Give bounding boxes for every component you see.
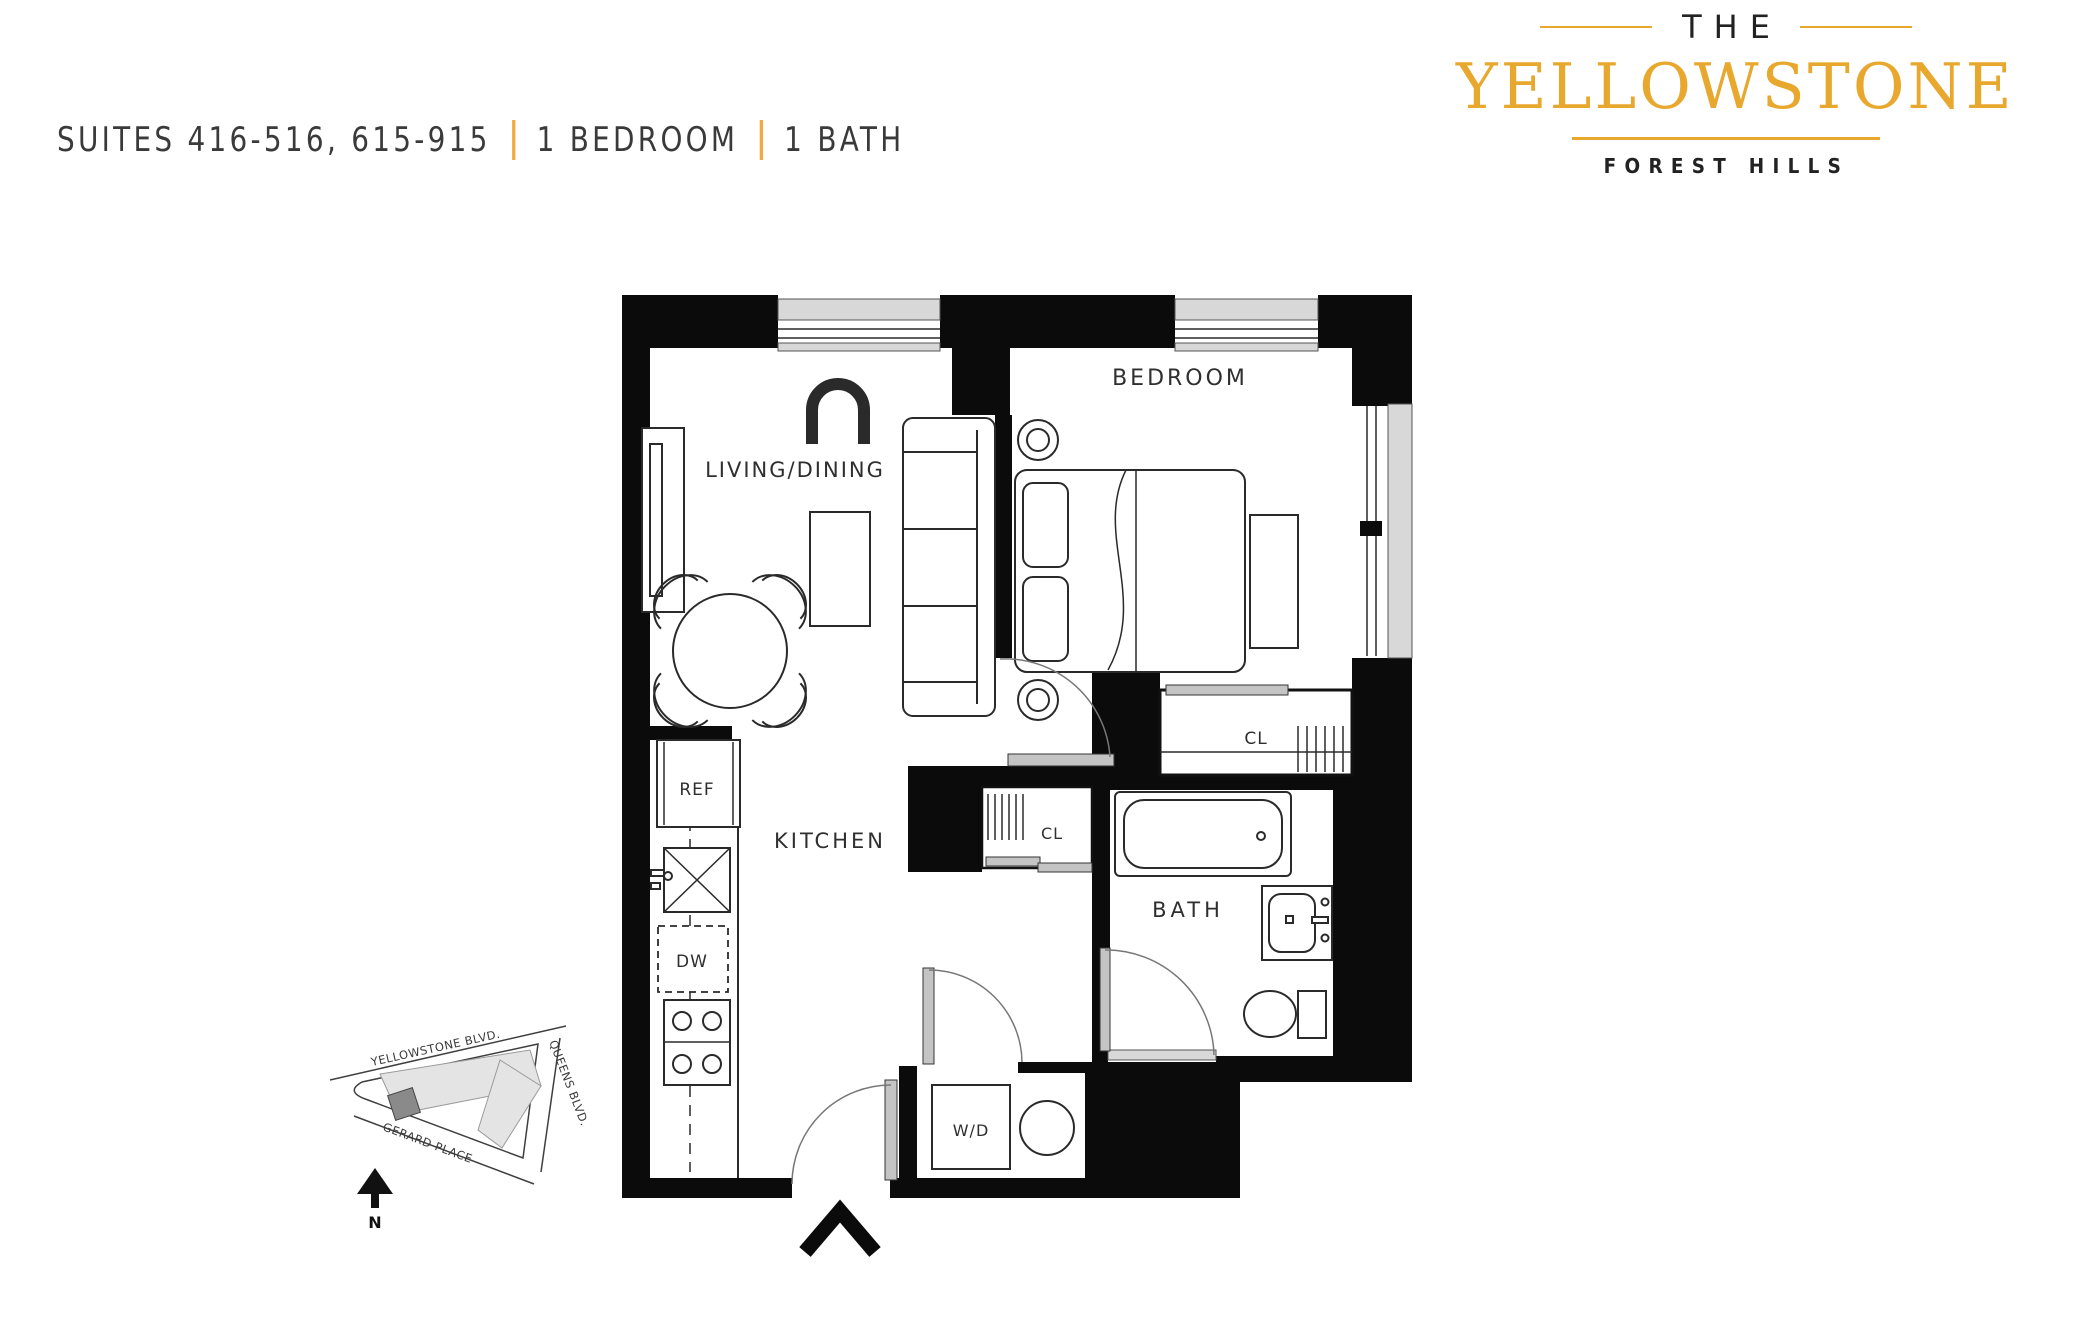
- closet-label: CL: [1244, 729, 1267, 749]
- door-leaf: [923, 968, 934, 1064]
- nightstand: [1018, 420, 1058, 460]
- nightstand-bottom: [1018, 680, 1058, 720]
- wall-shaft: [1085, 1062, 1240, 1198]
- window-sash-break: [1360, 521, 1382, 536]
- faucet: [651, 870, 664, 876]
- bath-label: BATH: [1152, 898, 1224, 922]
- washer-dryer-label: W/D: [953, 1121, 990, 1140]
- living-window: [778, 299, 940, 351]
- wall-top-right: [1318, 295, 1412, 348]
- refrigerator: REF: [657, 740, 740, 827]
- refrigerator-label: REF: [679, 780, 714, 800]
- floorplan-canvas: LIVING/DINING BEDROOM: [0, 0, 2085, 1342]
- hall-closet: CL: [982, 787, 1092, 872]
- bedroom-closet: CL: [1160, 685, 1352, 775]
- faucet-spout: [1312, 917, 1328, 923]
- living-dining-label: LIVING/DINING: [705, 458, 885, 482]
- laundry-basin: [1020, 1101, 1074, 1155]
- toilet-bowl: [1244, 991, 1296, 1037]
- wall-top-living: [650, 295, 778, 348]
- pillow: [1023, 483, 1068, 567]
- door-swing-arc: [792, 1085, 891, 1184]
- door-swing-arc: [1105, 950, 1214, 1055]
- window-sill-inner: [778, 343, 940, 351]
- bath-door: [1100, 948, 1216, 1060]
- stove: [664, 1000, 730, 1085]
- dishwasher-label: DW: [676, 952, 708, 972]
- coffee-table: [810, 512, 870, 626]
- sofa-outline: [903, 418, 995, 716]
- north-arrow-shaft: [371, 1188, 379, 1208]
- kitchen-sink: [651, 848, 730, 912]
- wall-hall-block: [908, 766, 982, 872]
- dishwasher: DW: [658, 926, 728, 992]
- kitchen-label: KITCHEN: [774, 829, 886, 853]
- wall-pier: [952, 295, 1010, 415]
- bedroom-label: BEDROOM: [1112, 366, 1248, 391]
- door-leaf: [1008, 754, 1114, 766]
- window-sill-outer: [1175, 299, 1318, 320]
- wall-entry-right: [899, 1066, 917, 1183]
- bathtub: [1115, 792, 1291, 876]
- door-leaf: [885, 1080, 897, 1180]
- wall-corner-tr: [1352, 348, 1412, 406]
- closet-door: [1038, 863, 1092, 872]
- vanity-sink: [1262, 886, 1332, 960]
- closet-door: [986, 857, 1040, 866]
- media-unit-shelf: [650, 444, 662, 596]
- window-sill-outer: [1388, 404, 1412, 658]
- wall-bottom-right: [890, 1178, 1240, 1198]
- wall-top-mid: [940, 295, 954, 348]
- entry-door: [792, 1080, 897, 1184]
- floorplan-sheet: SUITES 416-516, 615-915 1 BEDROOM 1 BATH…: [0, 0, 2085, 1342]
- bed: [1015, 470, 1245, 672]
- living-dining-room: LIVING/DINING: [640, 384, 995, 741]
- toilet-tank: [1298, 991, 1326, 1038]
- wd-door: [923, 968, 1022, 1064]
- wall-top-bedroom: [1010, 295, 1175, 348]
- site-map: YELLOWSTONE BLVD. QUEENS BLVD. GERARD PL…: [330, 1026, 592, 1232]
- closet-door: [1166, 685, 1288, 695]
- door-threshold: [1108, 1050, 1216, 1060]
- bedroom-window: [1175, 299, 1318, 351]
- sofa: [903, 418, 995, 716]
- window-sill-outer: [778, 299, 940, 320]
- wall-closet-column: [1092, 666, 1160, 790]
- wall-wd-top: [1018, 1062, 1085, 1073]
- entry-arrow-icon: [805, 1211, 875, 1252]
- nightstand: [1018, 680, 1058, 720]
- dresser: [1250, 515, 1298, 648]
- dining-table: [673, 594, 787, 708]
- wall-bottom-left: [622, 1178, 792, 1198]
- toilet: [1244, 991, 1326, 1038]
- north-label: N: [368, 1213, 381, 1232]
- bath-room: BATH: [1100, 792, 1332, 1060]
- door-leaf: [1100, 948, 1110, 1051]
- wall-kitchen-stub: [650, 726, 732, 740]
- kitchen-room: REF DW KITCHEN: [651, 740, 886, 1178]
- north-arrow-icon: N: [357, 1168, 393, 1232]
- laundry-entry: W/D: [792, 968, 1074, 1252]
- closet-label: CL: [1041, 824, 1063, 843]
- closet-box: [982, 787, 1092, 868]
- pillow: [1023, 577, 1068, 661]
- door-swing-arc: [929, 970, 1022, 1062]
- accent-chair: [812, 384, 864, 444]
- bedroom-side-window: [1360, 404, 1412, 658]
- bedroom-room: BEDROOM CL: [1000, 366, 1352, 775]
- nightstand-top: [1018, 420, 1058, 460]
- accent-chair-inner: [822, 400, 854, 444]
- window-sill-inner: [1175, 343, 1318, 351]
- wall-bedroom-living: [995, 415, 1012, 658]
- faucet-handle: [651, 883, 660, 889]
- wall-right-bath: [1333, 782, 1412, 1082]
- wall-right-mid: [1352, 658, 1412, 782]
